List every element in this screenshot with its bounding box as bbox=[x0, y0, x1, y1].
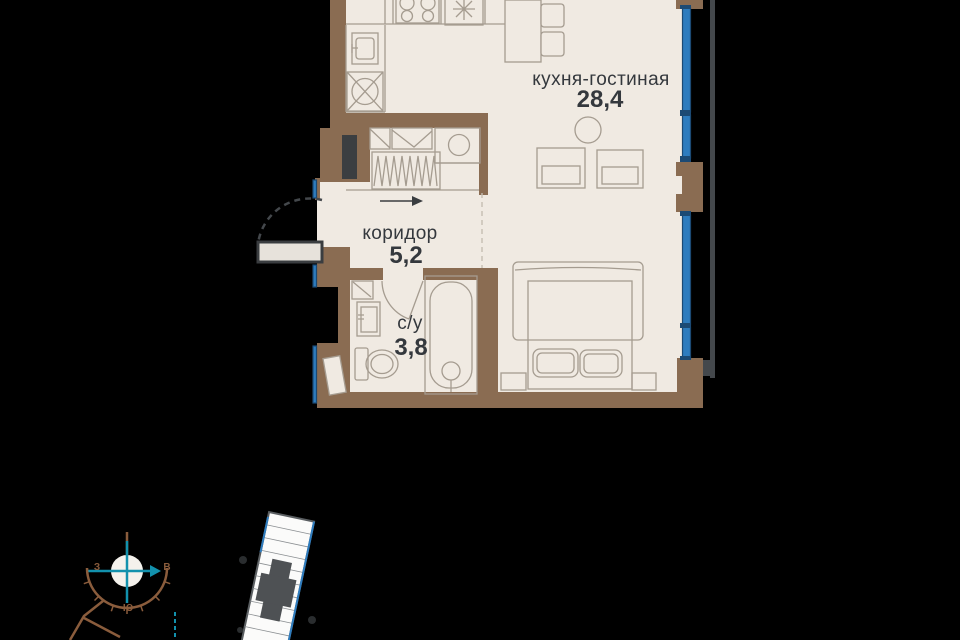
compass-south-label: Ю bbox=[123, 603, 133, 614]
room-name-bathroom: с/у bbox=[397, 313, 423, 334]
window-joint bbox=[680, 156, 691, 162]
vent-shaft bbox=[342, 135, 357, 179]
entry-door-leaf bbox=[258, 242, 322, 262]
entry-door bbox=[258, 198, 322, 262]
compass-arrowhead bbox=[150, 565, 161, 577]
stool-icon bbox=[541, 4, 564, 27]
wall-bath-top-left bbox=[350, 268, 383, 280]
window-joint bbox=[680, 323, 691, 328]
compass-rose: З В Ю bbox=[70, 532, 175, 640]
facade-outline bbox=[703, 0, 715, 378]
window-joint bbox=[680, 211, 691, 216]
compass-west-label: З bbox=[94, 562, 100, 573]
window-joint bbox=[680, 110, 691, 116]
entry-door-arc bbox=[258, 198, 322, 244]
wall-bottom-right-corner bbox=[677, 358, 703, 408]
screenshot-root: кухня-гостиная 28,4 коридор 5,2 с/у 3,8 … bbox=[0, 0, 960, 640]
wall-marker bbox=[313, 265, 317, 287]
wall-bottom bbox=[317, 392, 703, 408]
site-plan-building bbox=[240, 512, 314, 640]
left-wall-markers bbox=[313, 180, 317, 403]
wall-bath-right bbox=[477, 268, 498, 392]
window-segment bbox=[683, 115, 691, 158]
room-name-corridor: коридор bbox=[362, 223, 437, 244]
wall-bath-left bbox=[338, 287, 350, 345]
compass-east-label: В bbox=[163, 562, 170, 573]
window-segment bbox=[683, 215, 691, 325]
wall-left-top bbox=[330, 0, 346, 115]
window-joint bbox=[680, 5, 691, 9]
wall-marker bbox=[313, 346, 317, 403]
wall-bath-top-right bbox=[423, 268, 477, 280]
apartment-floor bbox=[317, 0, 689, 408]
floor-plan-svg: кухня-гостиная 28,4 коридор 5,2 с/у 3,8 … bbox=[0, 0, 960, 640]
room-area-bathroom: 3,8 bbox=[394, 334, 427, 361]
wall-marker bbox=[313, 180, 317, 198]
window-segment bbox=[683, 327, 691, 358]
window-joint bbox=[680, 356, 691, 360]
pier-notch bbox=[676, 176, 682, 194]
wall-wardrobe-top bbox=[330, 113, 487, 128]
stool-icon bbox=[541, 32, 564, 56]
room-area-corridor: 5,2 bbox=[389, 242, 422, 269]
window-segment bbox=[683, 8, 691, 112]
room-area-kitchen-living: 28,4 bbox=[577, 86, 624, 113]
